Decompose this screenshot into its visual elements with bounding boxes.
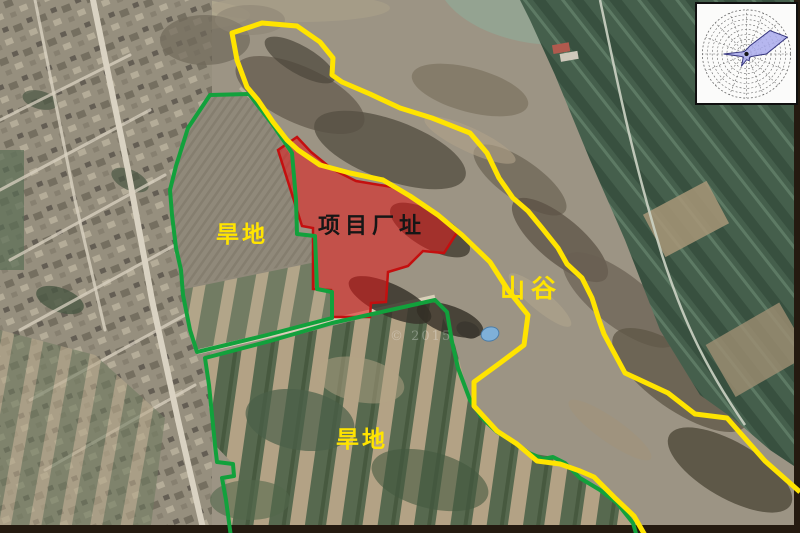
label-valley: 山谷	[500, 274, 562, 303]
imagery-watermark: © 2015	[390, 329, 452, 344]
map-container: © 2015 旱地 项目厂址 山谷 旱地	[0, 0, 800, 533]
wind-rose-inset	[695, 2, 798, 105]
label-project-site: 项目厂址	[318, 213, 426, 239]
label-dryland-upper: 旱地	[216, 221, 268, 248]
label-dryland-lower: 旱地	[336, 426, 388, 453]
windrose-center-dot	[744, 52, 748, 56]
